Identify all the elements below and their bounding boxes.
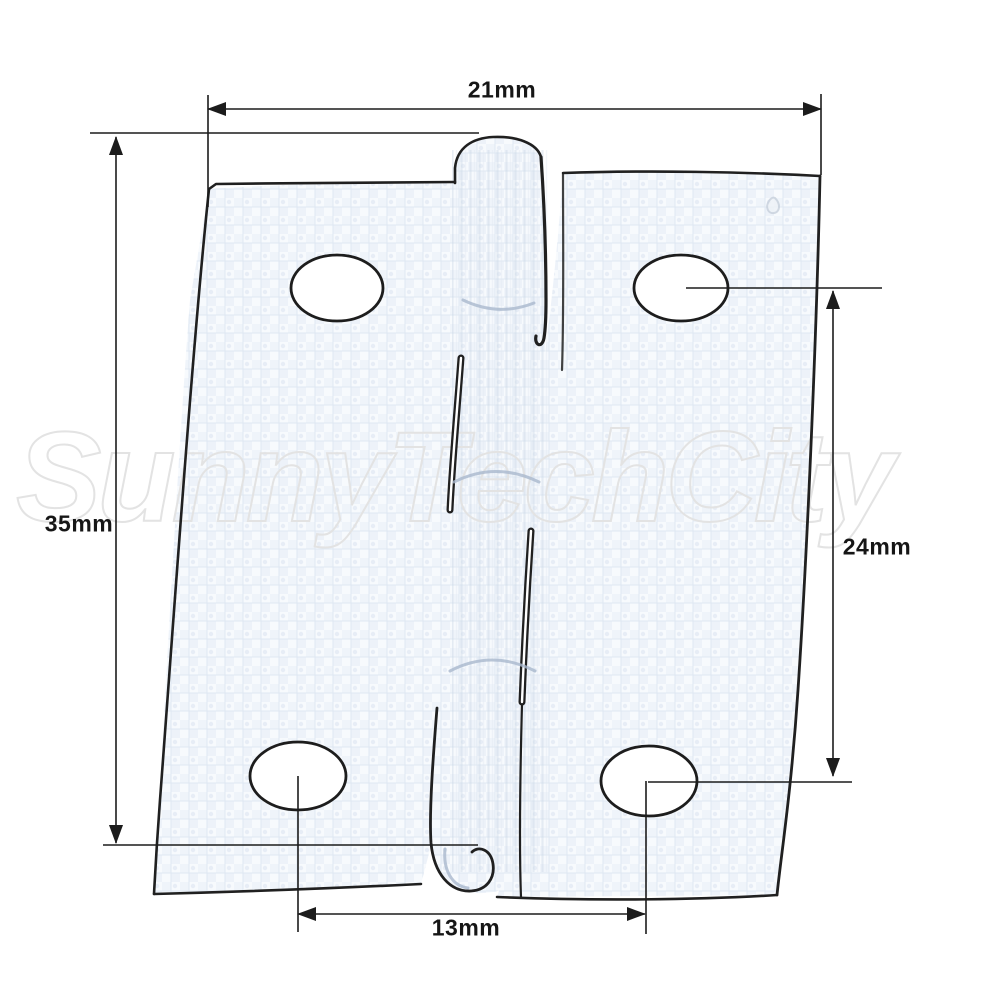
diagram-canvas: SunnyTechCity	[0, 0, 1000, 1000]
right-leaf-left-edge-upper	[562, 174, 563, 370]
hinge-pin-dome	[455, 137, 541, 183]
barrel-bottom-knuckle	[430, 708, 493, 891]
knuckle-arc-top	[463, 300, 534, 309]
left-leaf-left-edge	[154, 189, 209, 894]
surface-blemish	[767, 198, 779, 213]
left-leaf-bottom-edge	[154, 884, 421, 894]
right-leaf-left-edge-lower	[520, 704, 522, 897]
right-leaf-bottom-edge	[497, 895, 777, 899]
screw-hole-top-left	[291, 255, 383, 321]
dimension-label-hole-spacing-vertical: 24mm	[843, 534, 911, 561]
dimension-label-hole-spacing-horizontal: 13mm	[432, 915, 500, 942]
dimension-label-overall-height: 35mm	[45, 511, 113, 538]
right-leaf-top-edge	[563, 172, 820, 176]
dimension-label-overall-width: 21mm	[468, 77, 536, 104]
hinge-diagram	[0, 0, 1000, 1000]
knuckle-arc-middle	[454, 472, 539, 483]
screw-hole-bottom-right	[601, 746, 697, 816]
left-leaf-top-edge	[209, 182, 455, 189]
right-leaf-right-edge	[777, 176, 820, 895]
hinge-pin-slot	[536, 157, 546, 345]
